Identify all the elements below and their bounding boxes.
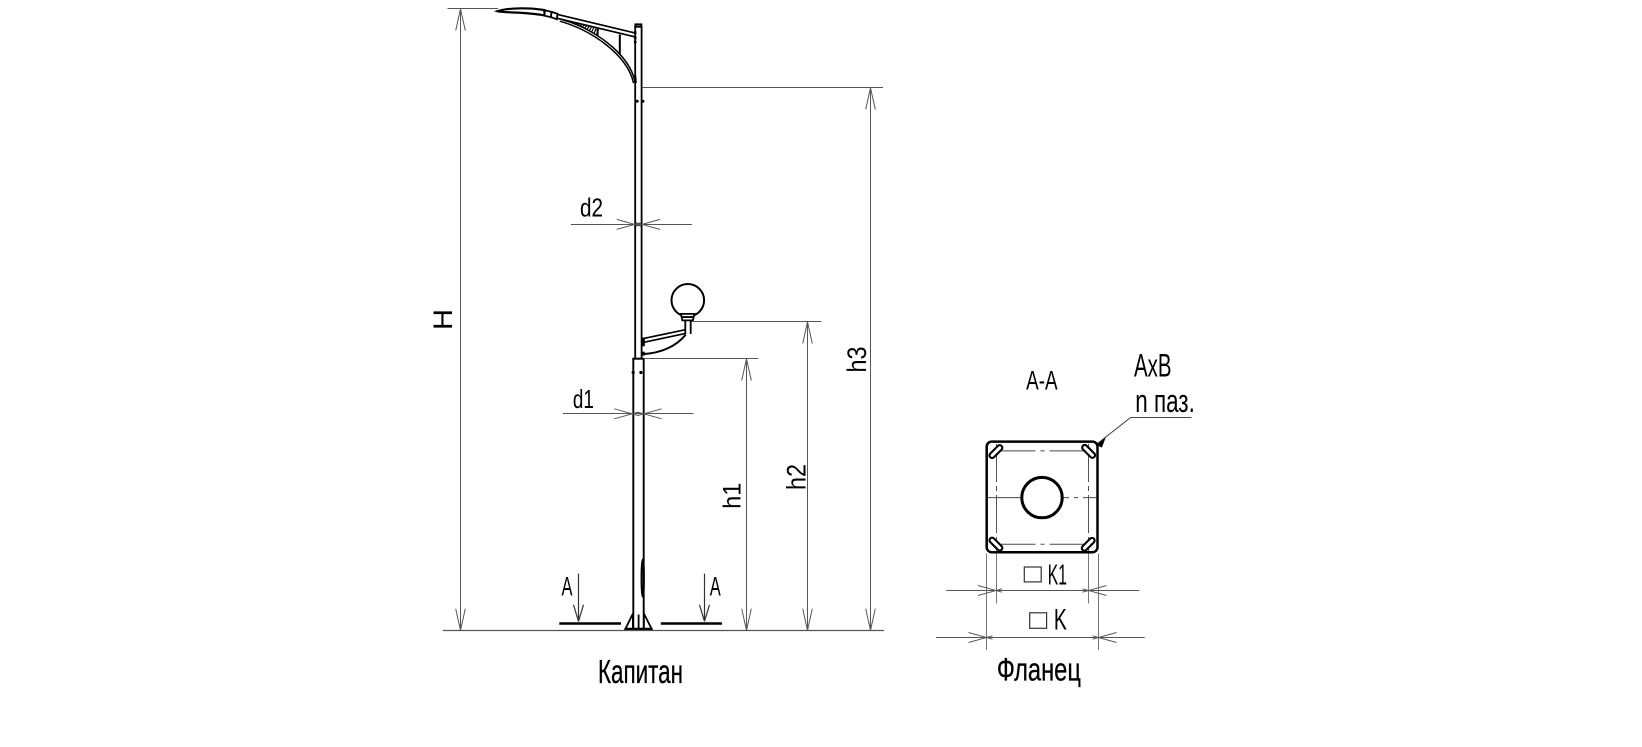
svg-text:K: K <box>1054 604 1067 637</box>
svg-text:n паз.: n паз. <box>1135 383 1195 419</box>
svg-text:H: H <box>428 309 458 330</box>
svg-text:d1: d1 <box>573 384 594 414</box>
svg-text:A: A <box>562 572 573 602</box>
svg-text:Капитан: Капитан <box>598 653 683 690</box>
svg-text:AxB: AxB <box>1134 348 1172 384</box>
svg-text:d2: d2 <box>580 192 603 222</box>
svg-text:K1: K1 <box>1048 559 1067 591</box>
svg-text:h1: h1 <box>719 483 747 509</box>
svg-text:h3: h3 <box>842 347 872 373</box>
svg-text:A: A <box>710 572 721 602</box>
svg-text:h2: h2 <box>782 464 812 490</box>
svg-text:Фланец: Фланец <box>997 652 1081 688</box>
svg-text:A-A: A-A <box>1026 366 1058 396</box>
